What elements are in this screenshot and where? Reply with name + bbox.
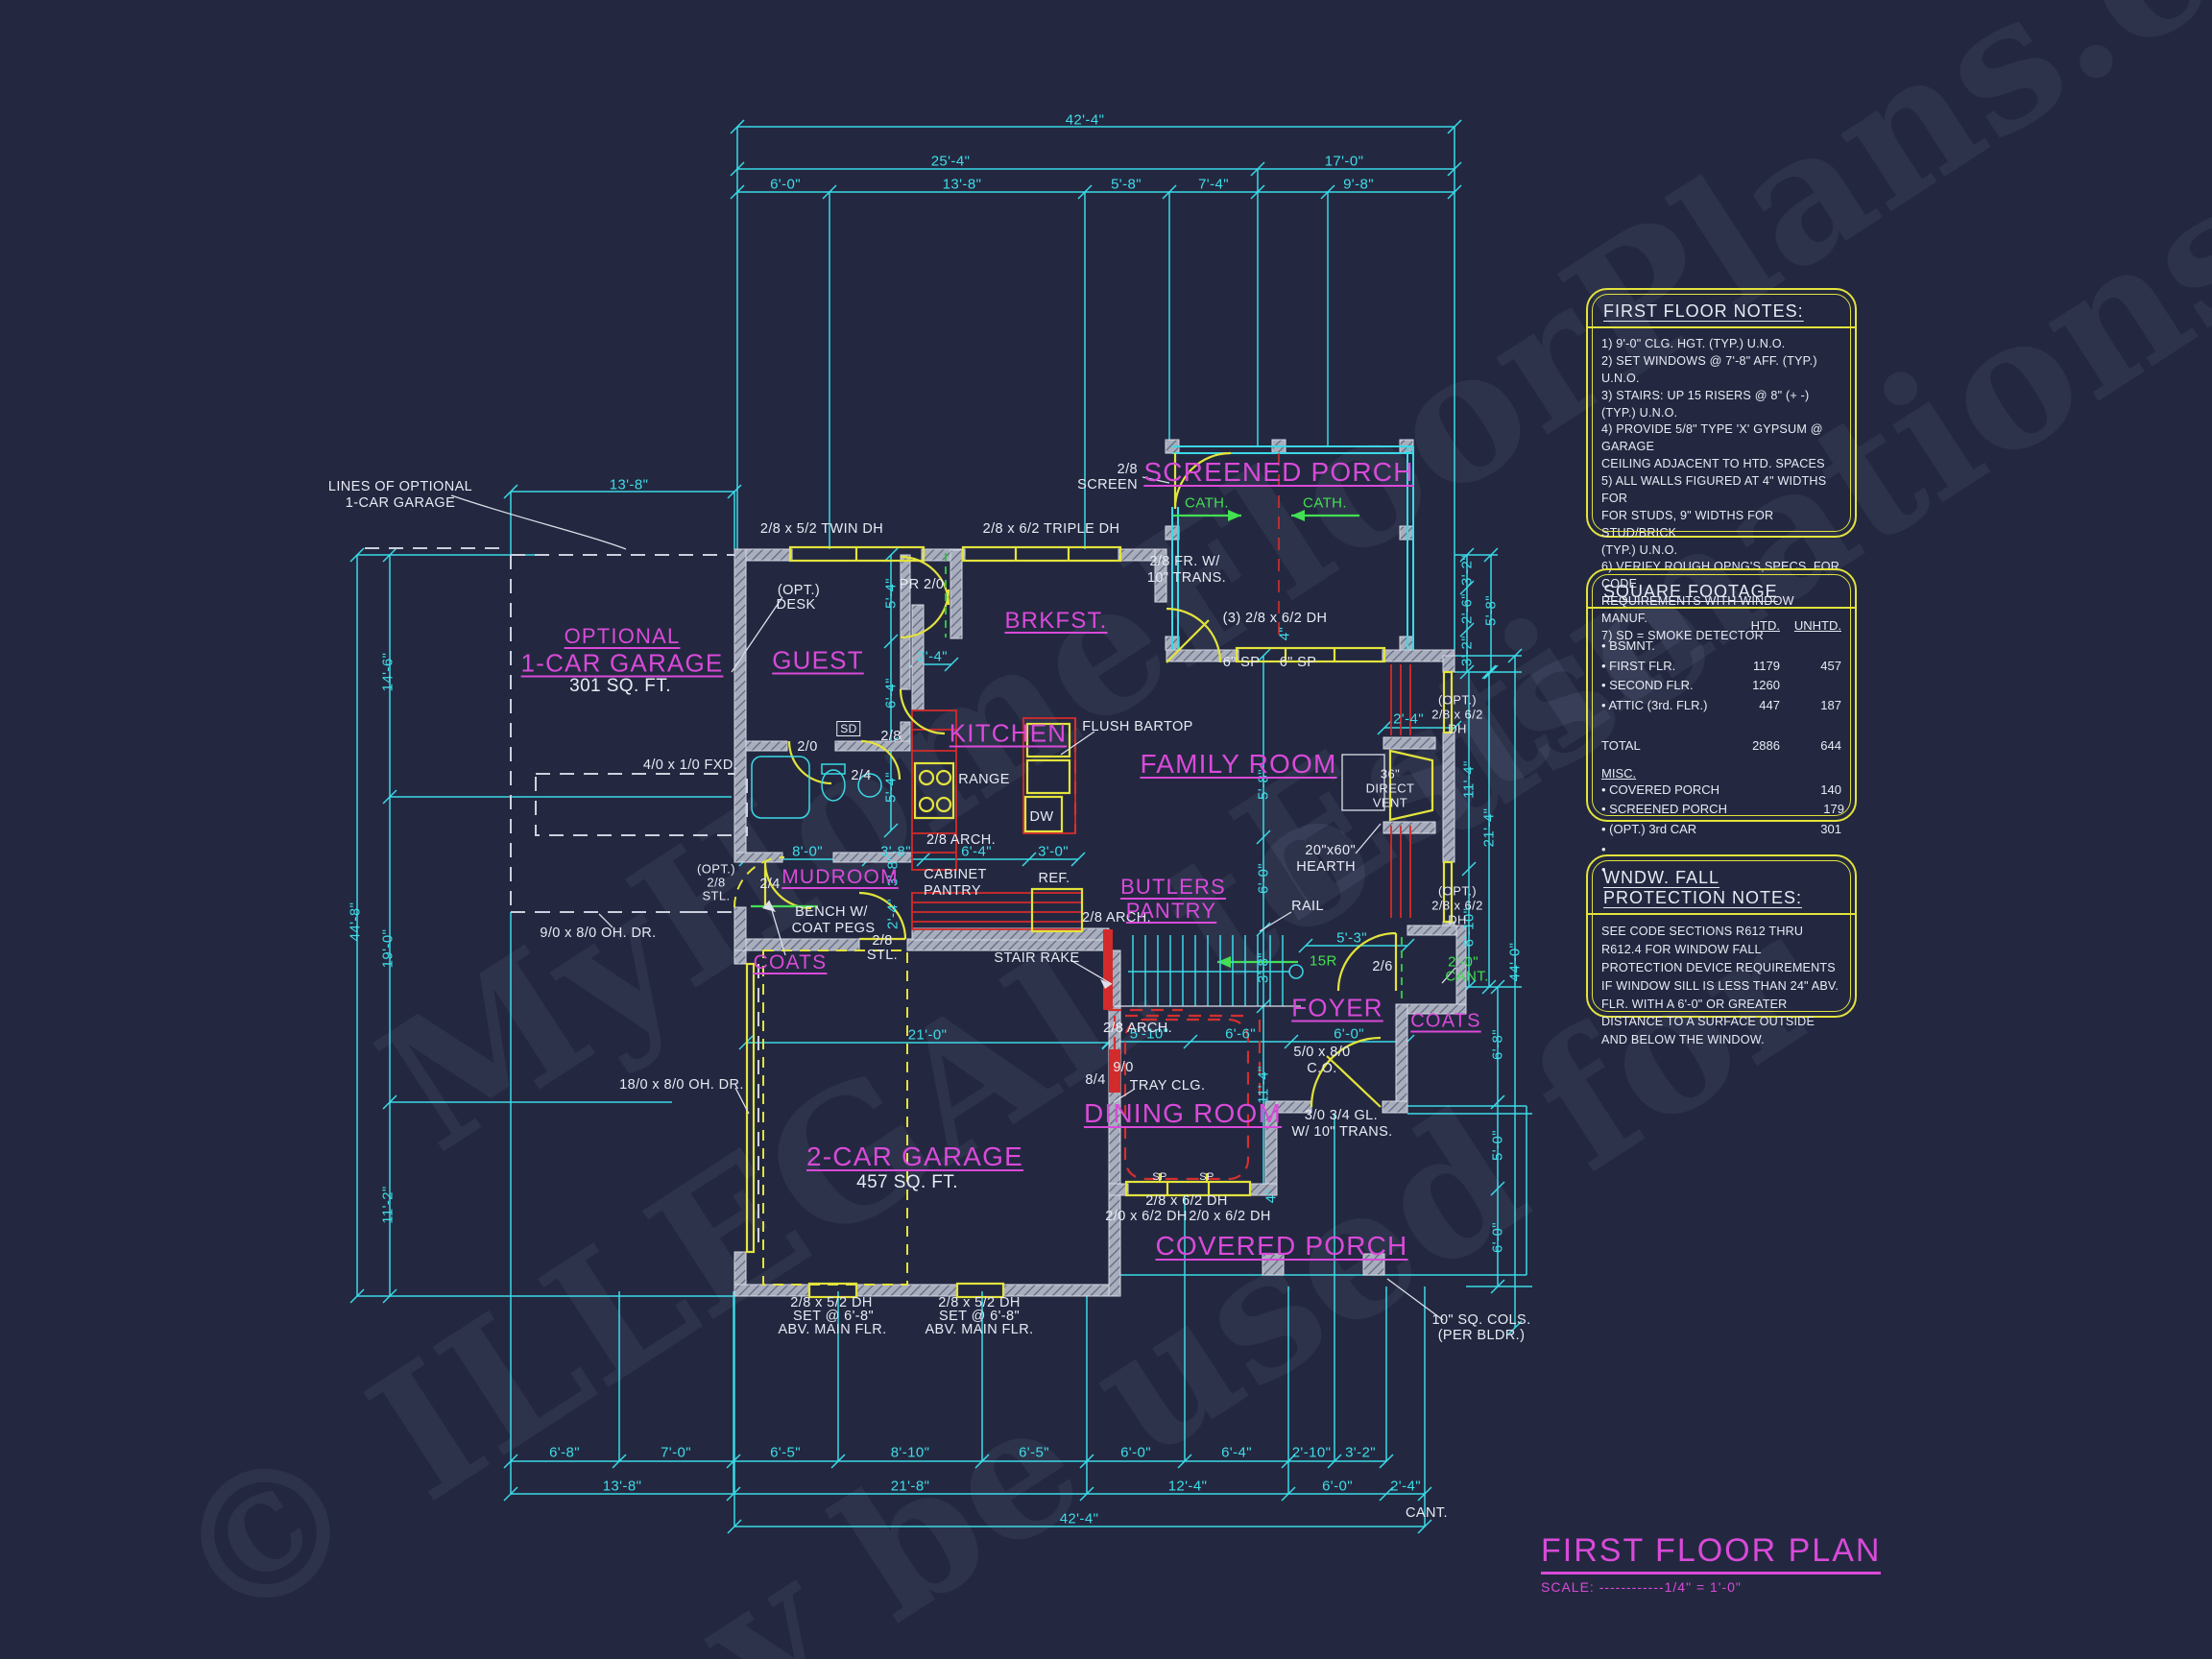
room-label: 2-CAR GARAGE (806, 1142, 1023, 1172)
dimension-label: 6'-5" (770, 1445, 801, 1461)
room-label: SCREENED PORCH (1143, 457, 1413, 488)
note-line: (TYP.) U.N.O. (1601, 542, 1841, 560)
optional-garage-outline (365, 548, 747, 912)
tub-symbol (752, 757, 809, 818)
dimension-label: 5'-0" (1490, 1130, 1506, 1161)
annotation-label: 10" SQ. COLS. (1431, 1312, 1530, 1328)
sheet-title: FIRST FLOOR PLAN (1541, 1532, 1881, 1575)
dimension-label: 14'-6" (380, 653, 397, 692)
room-label: MUDROOM (781, 866, 899, 889)
dimension-label: 12'-4" (1168, 1479, 1208, 1495)
annotation-label: (OPT.) (1438, 693, 1477, 708)
annotation-label: 2/8 (707, 876, 725, 890)
green-label: CATH. (1185, 495, 1229, 512)
annotation-label: DH (1448, 913, 1467, 927)
dimension-label: 21'-8" (891, 1479, 930, 1495)
annotation-label: 2/8 ARCH. (926, 832, 996, 848)
annotation-label: PR 2/0 (900, 577, 945, 592)
annotation-label: STL. (867, 948, 898, 963)
dimension-label: 7'-4" (1198, 177, 1229, 193)
annotation-label: COAT PEGS (792, 921, 876, 936)
annotation-label: SD (836, 721, 860, 736)
annotation-label: HEARTH (1296, 859, 1356, 875)
dimension-label: 7'-0" (661, 1445, 691, 1461)
sqft-misc-label: MISC. (1601, 766, 1841, 781)
dimension-label: 2'-4" (1393, 711, 1424, 728)
sheet-scale: SCALE: ------------1/4" = 1'-0" (1541, 1579, 1881, 1595)
fall-notes-divider (1588, 913, 1855, 915)
notes-title: FIRST FLOOR NOTES: (1603, 301, 1841, 322)
annotation-label: VENT (1373, 796, 1407, 810)
annotation-label: (OPT.) (697, 862, 735, 877)
dimension-label: 3'-2" (1459, 636, 1476, 666)
green-label: 15R (1310, 953, 1337, 970)
dimension-label: 2'-4" (917, 649, 948, 665)
dimension-label: 2'-10" (1292, 1445, 1332, 1461)
annotation-label: RANGE (958, 772, 1010, 787)
annotation-label: FLUSH BARTOP (1082, 719, 1192, 734)
green-label: CATH. (1303, 495, 1347, 512)
room-label: COVERED PORCH (1156, 1231, 1408, 1262)
annotation-label: 9/0 (1113, 1060, 1133, 1075)
sqft-row (1601, 716, 1841, 736)
note-line: CEILING ADJACENT TO HTD. SPACES (1601, 456, 1841, 473)
dimension-label: 2'-4" (885, 899, 902, 929)
annotation-label: (PER BLDR.) (1438, 1328, 1526, 1343)
sqft-col-unhtd: UNHTD. (1780, 616, 1841, 637)
room-label: KITCHEN (950, 719, 1068, 749)
annotation-label: 2/4 (851, 768, 871, 783)
dimension-label: 6'-5" (1019, 1445, 1049, 1461)
annotation-label: 3/0 3/4 GL. (1305, 1108, 1378, 1123)
room-label: BRKFST. (1004, 608, 1107, 635)
room-label: PANTRY (1126, 899, 1216, 924)
sqft-rows: • BSMNT. • FIRST FLR. 1179 457 • SECOND … (1601, 637, 1841, 757)
note-line: 2) SET WINDOWS @ 7'-8" AFF. (TYP.) U.N.O… (1601, 353, 1841, 388)
dimension-label: 44'-8" (348, 902, 364, 942)
annotation-label: DW (1030, 809, 1054, 825)
annotation-label: CABINET (924, 867, 987, 882)
dimension-label: 5'-8" (1483, 595, 1500, 626)
annotation-label: 2/8 (880, 729, 901, 744)
annotation-label: DESK (776, 597, 815, 613)
sqft-col-htd: HTD. (1724, 616, 1780, 637)
annotation-label: 2/8 (872, 933, 892, 949)
dimension-label: 8'-10" (891, 1445, 930, 1461)
annotation-label: 2/8 x 6/2 DH (1145, 1193, 1227, 1209)
refrigerator-symbol (1032, 889, 1082, 931)
fixed-window-outline (536, 774, 747, 835)
dimension-label: 6'-6" (1225, 1026, 1256, 1043)
dimension-label: 3'-2" (1345, 1445, 1376, 1461)
annotation-label: 4/0 x 1/0 FXD. (643, 757, 737, 773)
annotation-label: RAIL (1291, 899, 1324, 914)
annotation-label: 5/0 x 8/0 (1293, 1045, 1350, 1060)
annotation-label: C.O. (1307, 1061, 1336, 1076)
dimension-label: 5'-3" (1336, 930, 1367, 947)
dimension-label: 3'-0" (1038, 844, 1069, 860)
annotation-label: 6" SP (1280, 655, 1317, 670)
room-area-label: 301 SQ. FT. (569, 676, 671, 697)
dimension-label: 6'-4" (1221, 1445, 1252, 1461)
coats-optional-outline (763, 950, 907, 1285)
dimension-label: 6'-0" (1256, 863, 1272, 894)
dimension-label: 2'-6" (1459, 593, 1476, 624)
annotation-label: 2/8 ARCH. (1103, 1021, 1172, 1036)
floor-plan-canvas: MyHomeFloorPlans.com© ILLEGAL to useMay … (0, 0, 2212, 1659)
annotation-label: 9/0 x 8/0 OH. DR. (540, 926, 656, 941)
title-block: FIRST FLOOR PLAN SCALE: ------------1/4"… (1541, 1532, 1881, 1595)
annotation-label: 6" SP (1223, 655, 1261, 670)
annotation-label: 18/0 x 8/0 OH. DR. (619, 1077, 744, 1093)
sqft-row: • BSMNT. (1601, 637, 1841, 657)
annotation-label: 2/8 (1118, 462, 1138, 477)
toilet-symbol (822, 770, 845, 801)
dimension-label: 5'-8" (1111, 177, 1142, 193)
triple-window (963, 547, 1120, 561)
annotation-label: 1-CAR GARAGE (346, 495, 455, 511)
annotation-label: STAIR RAKE (994, 950, 1079, 966)
dimension-label: 6'-4" (883, 678, 900, 709)
square-footage-box: SQUARE FOOTAGE HTD. UNHTD. • BSMNT. • FI… (1586, 568, 1857, 822)
note-line: 1) 9'-0" CLG. HGT. (TYP.) U.N.O. (1601, 336, 1841, 353)
dimension-label: 6'-8" (549, 1445, 580, 1461)
sqft-divider (1588, 607, 1855, 609)
annotation-label: (OPT.) (1438, 884, 1477, 899)
annotation-label: 2/8 x 6/2 (1431, 708, 1482, 722)
dimension-label: 42'-4" (1066, 112, 1105, 129)
room-label: DINING ROOM (1084, 1098, 1282, 1129)
annotation-label: PANTRY (924, 883, 981, 899)
dimension-label: 3'-8" (1256, 952, 1272, 983)
annotation-label: SP (1199, 1171, 1214, 1183)
annotation-label: DIRECT (1366, 781, 1415, 796)
sqft-row: • ATTIC (3rd. FLR.) 447 187 (1601, 696, 1841, 716)
annotation-label: (3) 2/8 x 6/2 DH (1223, 611, 1328, 626)
room-label: BUTLERS (1120, 875, 1226, 900)
dimension-label: 44'-0" (1507, 943, 1524, 982)
annotation-label: 2/8 x 6/2 TRIPLE DH (983, 521, 1120, 537)
room-area-label: 457 SQ. FT. (856, 1172, 958, 1193)
sqft-row: TOTAL 2886 644 (1601, 736, 1841, 757)
notes-divider (1588, 326, 1855, 328)
island-cabinet (1027, 760, 1070, 793)
sqft-row: • FIRST FLR. 1179 457 (1601, 657, 1841, 677)
dimension-label: 5'-4" (883, 578, 900, 609)
annotation-label: 2/8 x 6/2 (1431, 899, 1482, 913)
plan-geometry (0, 0, 2212, 1659)
note-line: 4) PROVIDE 5/8" TYPE 'X' GYPSUM @ GARAGE (1601, 421, 1841, 456)
sqft-misc-row: • SCREENED PORCH 179 (1601, 800, 1841, 820)
annotation-label: REF. (1038, 871, 1070, 886)
garage-overhead-door (747, 964, 754, 1252)
stairs (1114, 935, 1303, 1006)
annotation-label: 36" (1381, 767, 1400, 781)
annotation-label: LINES OF OPTIONAL (328, 479, 472, 494)
dimension-label: 6'-8" (1490, 1029, 1506, 1060)
annotation-label: SP (1152, 1171, 1166, 1183)
annotation-label: 2/8 FR. W/ (1149, 554, 1219, 569)
dimension-label: 5'-4" (883, 772, 900, 803)
dimension-label: 6'-0" (1490, 1222, 1506, 1253)
annotation-label: 2/8 x 5/2 TWIN DH (760, 521, 883, 537)
dimension-label: 13'-8" (943, 177, 982, 193)
room-label: COATS (1410, 1011, 1480, 1033)
dimension-label: 19'-0" (380, 929, 397, 969)
annotation-label: W/ 10" TRANS. (1291, 1124, 1392, 1140)
dimension-label: 21'-4" (1481, 808, 1498, 848)
sqft-misc-row: • COVERED PORCH 140 (1601, 781, 1841, 801)
dimension-label: 4" (1263, 1190, 1280, 1203)
sqft-row: • SECOND FLR. 1260 (1601, 676, 1841, 696)
dimension-label: 6'-0" (1334, 1026, 1364, 1043)
sqft-header-row: HTD. UNHTD. (1601, 616, 1841, 637)
fall-notes-title: WNDW. FALL PROTECTION NOTES: (1603, 868, 1841, 908)
room-label: COATS (754, 951, 828, 974)
annotation-label: (OPT.) (778, 583, 820, 598)
dimension-label: 21'-0" (908, 1027, 948, 1044)
room-label: FAMILY ROOM (1140, 749, 1336, 780)
dimension-label: 11'-4" (1461, 760, 1478, 799)
sqft-title: SQUARE FOOTAGE (1603, 582, 1841, 602)
room-label: FOYER (1291, 994, 1383, 1023)
dimension-label: 8'-0" (792, 844, 823, 860)
room-label: 1-CAR GARAGE (521, 649, 724, 679)
annotation-label: TRAY CLG. (1130, 1078, 1206, 1094)
annotation-label: 10" TRANS. (1147, 570, 1226, 586)
dimension-label: 42'-4" (1060, 1511, 1099, 1527)
note-line: 3) STAIRS: UP 15 RISERS @ 8" (+ -) (1601, 388, 1841, 405)
dimension-label: 13'-8" (603, 1479, 642, 1495)
fall-notes-body: SEE CODE SECTIONS R612 THRU R612.4 FOR W… (1601, 923, 1841, 1049)
dimension-label: 6'-0" (1120, 1445, 1151, 1461)
annotation-label: ABV. MAIN FLR. (925, 1322, 1033, 1337)
annotation-label: 2/0 (797, 739, 817, 755)
annotation-label: SCREEN (1077, 477, 1138, 493)
annotation-label: 2/0 x 6/2 DH (1189, 1209, 1270, 1224)
note-line: (TYP.) U.N.O. (1601, 405, 1841, 422)
fall-protection-notes-box: WNDW. FALL PROTECTION NOTES: SEE CODE SE… (1586, 854, 1857, 1018)
room-label: GUEST (772, 646, 864, 676)
dimension-label: 17'-0" (1325, 154, 1364, 170)
dimension-label: 4" (1277, 627, 1293, 640)
annotation-label: 8/4 (1085, 1072, 1105, 1088)
room-label: OPTIONAL (565, 624, 681, 649)
green-label: CANT. (1445, 969, 1488, 985)
sqft-misc-row: • (OPT.) 3rd CAR 301 (1601, 820, 1841, 840)
bath-fixtures (752, 757, 881, 818)
note-line: 5) ALL WALLS FIGURED AT 4" WIDTHS FOR (1601, 473, 1841, 508)
annotation-label: 2/6 (1372, 959, 1392, 974)
dimension-label: 9'-8" (1343, 177, 1374, 193)
dimension-label: 6'-0" (1322, 1479, 1353, 1495)
annotation-label: ABV. MAIN FLR. (778, 1322, 886, 1337)
dimension-label: 25'-4" (931, 154, 971, 170)
dimension-label: 3'-2" (1459, 555, 1476, 586)
annotation-label: 20"x60" (1305, 843, 1356, 858)
annotation-label: DH (1448, 722, 1467, 736)
dimension-label: 2'-4" (1390, 1479, 1421, 1495)
note-line: FOR STUDS, 9" WIDTHS FOR STUD/BRICK (1601, 508, 1841, 542)
first-floor-notes-box: FIRST FLOOR NOTES: 1) 9'-0" CLG. HGT. (T… (1586, 288, 1857, 538)
annotation-label: 2/0 x 6/2 DH (1105, 1209, 1187, 1224)
dimension-label: 13'-8" (610, 477, 649, 493)
annotation-label: STL. (702, 889, 730, 903)
annotation-label: BENCH W/ (795, 904, 868, 920)
annotation-label: 2/4 (759, 877, 780, 892)
dimension-label: 6'-0" (770, 177, 801, 193)
dimension-label: 11'-2" (380, 1186, 397, 1224)
annotation-label: CANT. (1406, 1505, 1448, 1521)
